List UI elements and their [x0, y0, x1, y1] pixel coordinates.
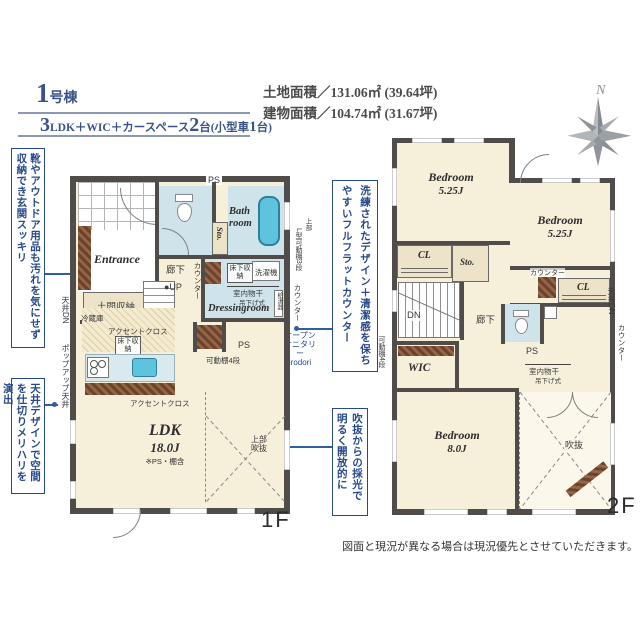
ceiling-dn-label-1f: 天井DN — [60, 296, 71, 324]
wall — [509, 138, 515, 183]
l-shelf-note: L型可動棚3段 — [293, 228, 303, 271]
disclaimer: 図面と現況が異なる場合は現況優先とさせていただきます。 — [340, 538, 638, 554]
upper-shelf-note: 上部 — [302, 218, 312, 231]
wic-shelf — [398, 346, 454, 356]
window — [532, 509, 576, 515]
spec-ldk-text: LDK＋WIC＋カースペース — [50, 122, 189, 134]
counter-front-accent — [85, 383, 175, 395]
floorplan-page: 1号棟 3LDK＋WIC＋カースペース2台(小型車1台) 土地面積／131.06… — [0, 0, 640, 640]
window — [392, 290, 397, 312]
underfloor-storage-2: 床下収納 — [115, 336, 141, 356]
underfloor-storage-1: 床下収納 — [227, 263, 253, 283]
wall — [501, 304, 505, 344]
toilet2-icon — [513, 310, 529, 334]
window — [392, 420, 397, 462]
window — [170, 508, 207, 514]
void2-label: 吹抜 — [564, 438, 584, 451]
building-number: 1 — [36, 78, 50, 108]
bedroom1-size: 5.25J — [416, 185, 486, 197]
window — [542, 178, 572, 183]
door-arc — [113, 510, 141, 538]
hanger-rail — [401, 268, 448, 273]
area-info: 土地面積／131.06㎡ (39.64坪) 建物面積／104.74㎡ (31.6… — [263, 82, 437, 124]
ldk-size: 18.0J — [130, 440, 200, 456]
ldk-note: ※PS・棚含 — [130, 456, 200, 467]
window — [454, 138, 484, 143]
stairs-up-label: ●UP — [164, 282, 182, 292]
land-area: 土地面積／131.06㎡ (39.64坪) — [263, 82, 437, 103]
toilet-bowl — [515, 318, 528, 334]
counter2 — [538, 277, 556, 298]
wall — [201, 318, 284, 322]
compass-n-label: N — [595, 83, 606, 98]
sink-icon — [132, 358, 157, 377]
void-x-lines — [206, 392, 285, 502]
wall — [460, 282, 464, 340]
window — [70, 481, 76, 499]
toilet-bowl — [177, 203, 192, 222]
toilet-icon — [175, 194, 193, 222]
callout-ceiling-design: 天井デザインで空間を仕切りメリハリを演出 — [11, 378, 45, 494]
building-area: 建物面積／104.74㎡ (31.67坪) — [263, 103, 437, 124]
hanger-rail — [562, 295, 606, 300]
drying-rail-2f — [525, 364, 571, 365]
entrance-label: Entrance — [94, 252, 140, 267]
ceiling-dn-label-2f: 天井DN — [606, 287, 617, 315]
spec-line: 3LDK＋WIC＋カースペース2台(小型車1台) — [40, 114, 272, 137]
wall — [397, 341, 459, 345]
void-area — [205, 392, 285, 502]
toilet-tank — [175, 194, 193, 202]
wall — [212, 182, 216, 222]
window — [412, 138, 442, 143]
header-rule-bottom — [18, 135, 250, 137]
bath-label: Bath room — [229, 206, 252, 230]
window — [284, 202, 290, 230]
corridor2-label: 廊下 — [476, 312, 495, 326]
stairs-dn-label: DN — [406, 310, 422, 321]
callout-flat-counter: 洗練されたデザイン＋清潔感を保ちやすいフルフラットカウンター — [332, 180, 378, 372]
bedroom2-size: 5.25J — [520, 228, 600, 240]
water-heater-label: 給湯器 — [275, 292, 284, 310]
bedroom1-label: Bedroom — [416, 170, 486, 185]
bath-label-2: room — [229, 218, 252, 230]
corridor-label: 廊下 — [166, 262, 185, 276]
washer-label: 洗濯機 — [255, 267, 278, 278]
ldk-block: LDK 18.0J ※PS・棚含 — [130, 422, 200, 467]
ps-shaft — [544, 306, 557, 319]
callout-entrance-storage: 靴やアウトドア用品も汚れを気にせず収納でき玄関スッキリ — [11, 148, 45, 348]
bedroom2-label: Bedroom — [520, 213, 600, 228]
sto2-label: Sto. — [460, 257, 474, 267]
window — [237, 508, 255, 514]
counter-left-label: カウンター — [192, 262, 203, 300]
window — [610, 423, 615, 465]
ps-label-2f: PS — [526, 346, 538, 356]
wic-label: WIC — [408, 362, 430, 374]
floor2-label: 2F — [607, 493, 637, 519]
ps-label-mid: PS — [238, 340, 250, 350]
shelf4-label: 可動棚4段 — [206, 355, 240, 366]
bathtub-icon — [258, 196, 280, 246]
wall — [222, 322, 226, 352]
counter-right-label-2f: カウンター — [616, 324, 627, 362]
wall — [193, 322, 197, 352]
toilet-tank — [513, 310, 529, 317]
building-title: 1号棟 — [36, 78, 78, 109]
window — [70, 420, 76, 444]
counter-right-label-1f: カウンター — [292, 284, 303, 322]
floor1-plan: Entrance 土間収納 PS Sto. Bath room 廊下 ●UP カ… — [70, 176, 290, 514]
fridge-label: 冷蔵庫 — [81, 313, 104, 324]
cl1-label: CL — [418, 250, 431, 261]
wall — [397, 388, 519, 392]
spec-car-text: 台(小型車 — [199, 122, 249, 134]
bedroom1-block: Bedroom 5.25J — [416, 170, 486, 197]
spec-car-count: 2 — [189, 114, 199, 136]
burner — [90, 367, 98, 375]
building-suffix: 号棟 — [50, 91, 78, 106]
hall-shelf — [197, 325, 222, 349]
dressing-label: Dressingroom — [208, 303, 269, 314]
window — [284, 430, 290, 470]
bedroom3-block: Bedroom 8.0J — [420, 428, 494, 455]
window — [392, 168, 397, 206]
accent-cloth-2: アクセントクロス — [130, 398, 190, 409]
tsurisage2-label: 吊下げ式 — [535, 375, 561, 385]
dressing-counter — [205, 262, 221, 284]
sto-label: Sto. — [215, 227, 225, 240]
window — [610, 210, 615, 262]
floor2-plan: Bedroom 5.25J Bedroom 5.25J CL Sto. DN 廊… — [392, 138, 615, 515]
callout-void-light: 吹抜からの採光で明るく開放的に — [332, 408, 368, 516]
cl2-label: CL — [577, 282, 590, 293]
popup-ceiling-label: ポップアップ天井 — [60, 344, 71, 408]
window — [580, 178, 600, 183]
bedroom2-block: Bedroom 5.25J — [520, 213, 600, 240]
spec-ldk-count: 3 — [40, 114, 50, 136]
bath-label-1: Bath — [229, 206, 252, 218]
leader-counter-dot — [294, 326, 299, 331]
leader-ceiling-dot — [52, 402, 57, 407]
window — [424, 509, 468, 515]
drying-rail — [227, 286, 279, 287]
shoe-cabinet — [78, 226, 91, 290]
window — [113, 508, 140, 514]
bedroom3-label: Bedroom — [420, 428, 494, 443]
floor1-label: 1F — [261, 507, 291, 533]
window — [487, 509, 507, 515]
spec-small-car-count: 1 — [249, 119, 257, 135]
burner — [98, 360, 106, 368]
shelf4-label-2f: 可動棚4段 — [376, 336, 386, 368]
stove-icon — [87, 357, 109, 378]
leader-counter — [297, 328, 332, 330]
bedroom3-size: 8.0J — [420, 443, 494, 455]
wall — [455, 341, 459, 388]
ldk-label: LDK — [130, 422, 200, 440]
